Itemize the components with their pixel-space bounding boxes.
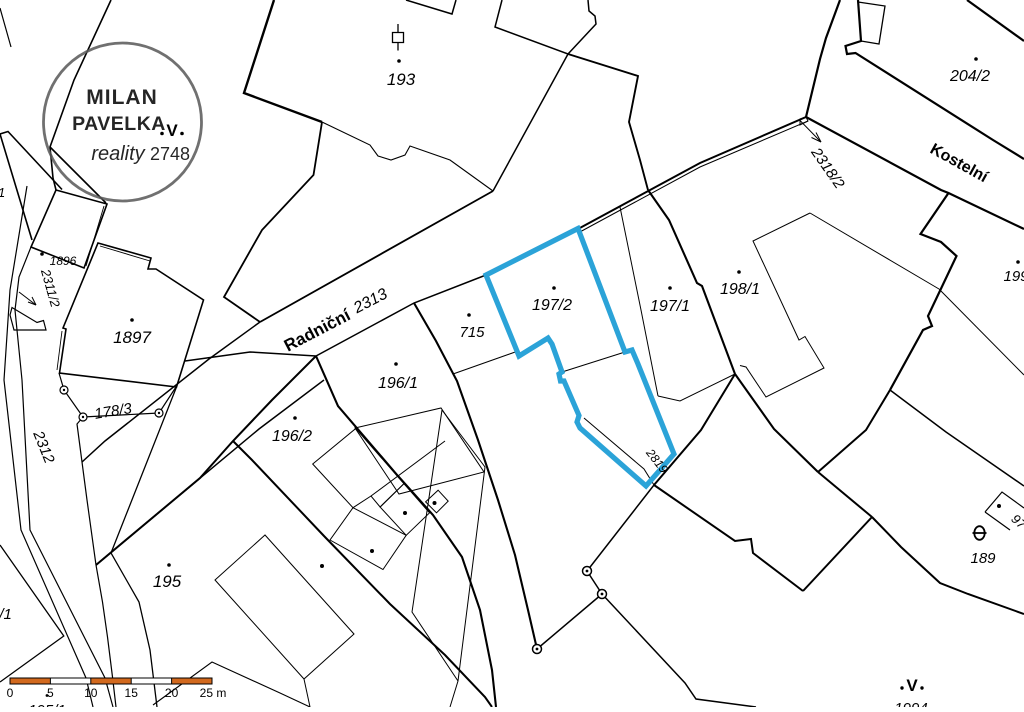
svg-text:1: 1 — [0, 185, 5, 200]
svg-text:5: 5 — [47, 686, 54, 700]
svg-text:reality: reality — [91, 143, 145, 165]
svg-text:196/1: 196/1 — [378, 375, 418, 392]
svg-text:MILAN: MILAN — [86, 86, 158, 109]
svg-text:1994: 1994 — [894, 700, 927, 707]
svg-text:10: 10 — [84, 686, 98, 700]
svg-text:197/1: 197/1 — [650, 298, 690, 315]
svg-text:195: 195 — [153, 572, 182, 591]
svg-text:199: 199 — [1003, 268, 1024, 285]
svg-text:2748: 2748 — [150, 144, 190, 164]
svg-text:25 m: 25 m — [200, 686, 227, 700]
svg-text:196/2: 196/2 — [272, 428, 312, 445]
svg-text:189: 189 — [970, 550, 996, 567]
svg-text:PAVELKA: PAVELKA — [72, 113, 166, 135]
svg-text:197/2: 197/2 — [532, 297, 572, 314]
svg-text:204/2: 204/2 — [949, 68, 990, 85]
svg-text:715: 715 — [459, 324, 485, 341]
svg-text:1897: 1897 — [113, 328, 151, 347]
svg-text:20: 20 — [165, 686, 179, 700]
svg-text:6/1: 6/1 — [0, 606, 12, 623]
svg-text:1896: 1896 — [50, 254, 77, 268]
svg-text:V: V — [906, 676, 918, 695]
svg-text:V: V — [166, 121, 178, 140]
svg-text:15: 15 — [125, 686, 139, 700]
svg-text:0: 0 — [7, 686, 14, 700]
svg-text:195/1: 195/1 — [28, 702, 66, 707]
svg-text:198/1: 198/1 — [720, 281, 760, 298]
svg-text:193: 193 — [387, 70, 416, 89]
